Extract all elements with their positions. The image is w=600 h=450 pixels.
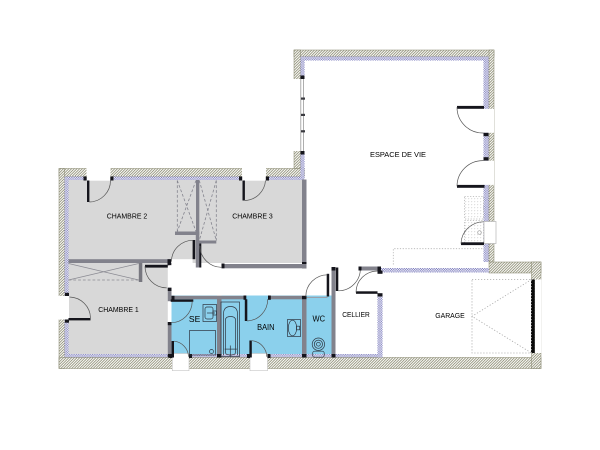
svg-text:WC: WC (313, 313, 326, 323)
svg-text:CHAMBRE 3: CHAMBRE 3 (232, 213, 273, 220)
svg-text:CHAMBRE 2: CHAMBRE 2 (107, 213, 148, 220)
svg-text:SE: SE (189, 314, 201, 324)
svg-text:ESPACE DE VIE: ESPACE DE VIE (370, 150, 426, 159)
svg-text:CHAMBRE 1: CHAMBRE 1 (98, 307, 139, 314)
svg-text:BAIN: BAIN (257, 322, 274, 332)
svg-text:GARAGE: GARAGE (435, 311, 465, 320)
svg-text:CELLIER: CELLIER (342, 310, 370, 319)
